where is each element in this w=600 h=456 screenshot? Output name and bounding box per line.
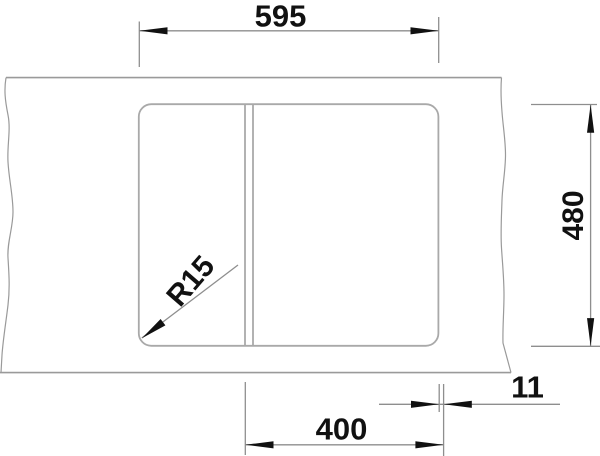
svg-text:480: 480: [557, 190, 590, 240]
svg-text:400: 400: [316, 412, 368, 447]
svg-text:595: 595: [255, 0, 307, 34]
svg-text:11: 11: [511, 370, 544, 405]
